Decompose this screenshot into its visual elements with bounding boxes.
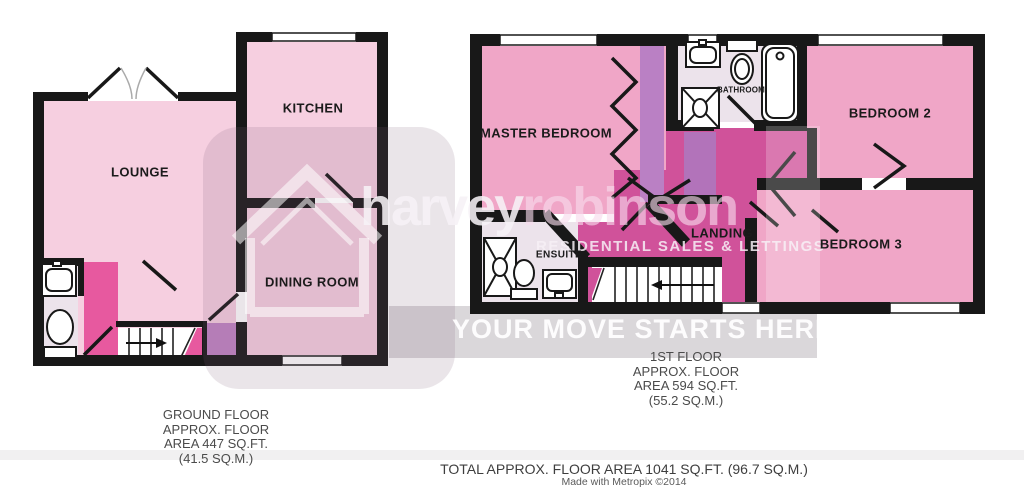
shower-icon — [682, 88, 719, 128]
metropix-credit: Made with Metropix ©2014 — [324, 476, 924, 487]
stairs-first — [592, 267, 722, 302]
total-area-text: TOTAL APPROX. FLOOR AREA 1041 SQ.FT. (96… — [324, 461, 924, 477]
patio-door-leaf-right — [146, 68, 178, 98]
bathroom-sink-icon — [686, 40, 720, 67]
ensuite-toilet-icon — [511, 260, 537, 299]
ground-floor-plan — [33, 32, 388, 366]
lilac-pad — [684, 132, 716, 196]
ground-floor-caption: GROUND FLOOR APPROX. FLOOR AREA 447 SQ.F… — [116, 408, 316, 466]
bedroom2-floor — [807, 46, 973, 178]
bedroom3-window — [890, 303, 960, 313]
ground-caption-line4: (41.5 SQ.M.) — [116, 452, 316, 467]
first-caption-line3: AREA 594 SQ.FT. — [586, 379, 786, 394]
first-floor-plan — [470, 34, 985, 314]
kitchen-window — [272, 33, 356, 41]
ensuite-sink-icon — [543, 270, 576, 298]
floorplan-canvas: harveyrobinson RESIDENTIAL SALES & LETTI… — [0, 0, 1024, 487]
ground-caption-line3: AREA 447 SQ.FT. — [116, 437, 316, 452]
stairs-ground — [118, 328, 202, 358]
dining-floor — [247, 203, 377, 355]
patio-door-leaf-left — [88, 68, 120, 98]
bedroom2-window — [818, 35, 943, 45]
wardrobe-strip — [640, 46, 664, 202]
ensuite-shower-icon — [484, 238, 516, 296]
first-caption-line1: 1ST FLOOR — [586, 350, 786, 365]
stair-landing-pad — [207, 323, 236, 357]
master-window — [500, 35, 597, 45]
stairwell-opening — [722, 303, 760, 313]
ground-caption-line2: APPROX. FLOOR — [116, 423, 316, 438]
door-swing-arcs — [121, 68, 146, 99]
first-floor-caption: 1ST FLOOR APPROX. FLOOR AREA 594 SQ.FT. … — [586, 350, 786, 408]
first-caption-line2: APPROX. FLOOR — [586, 365, 786, 380]
bathtub-icon — [762, 44, 798, 122]
ground-caption-line1: GROUND FLOOR — [116, 408, 316, 423]
kitchen-floor — [247, 42, 377, 198]
first-caption-line4: (55.2 SQ.M.) — [586, 394, 786, 409]
wc-sink-icon — [42, 261, 76, 296]
hallway-floor — [84, 262, 118, 358]
wc-toilet-icon — [44, 310, 76, 358]
dining-window — [282, 356, 342, 365]
